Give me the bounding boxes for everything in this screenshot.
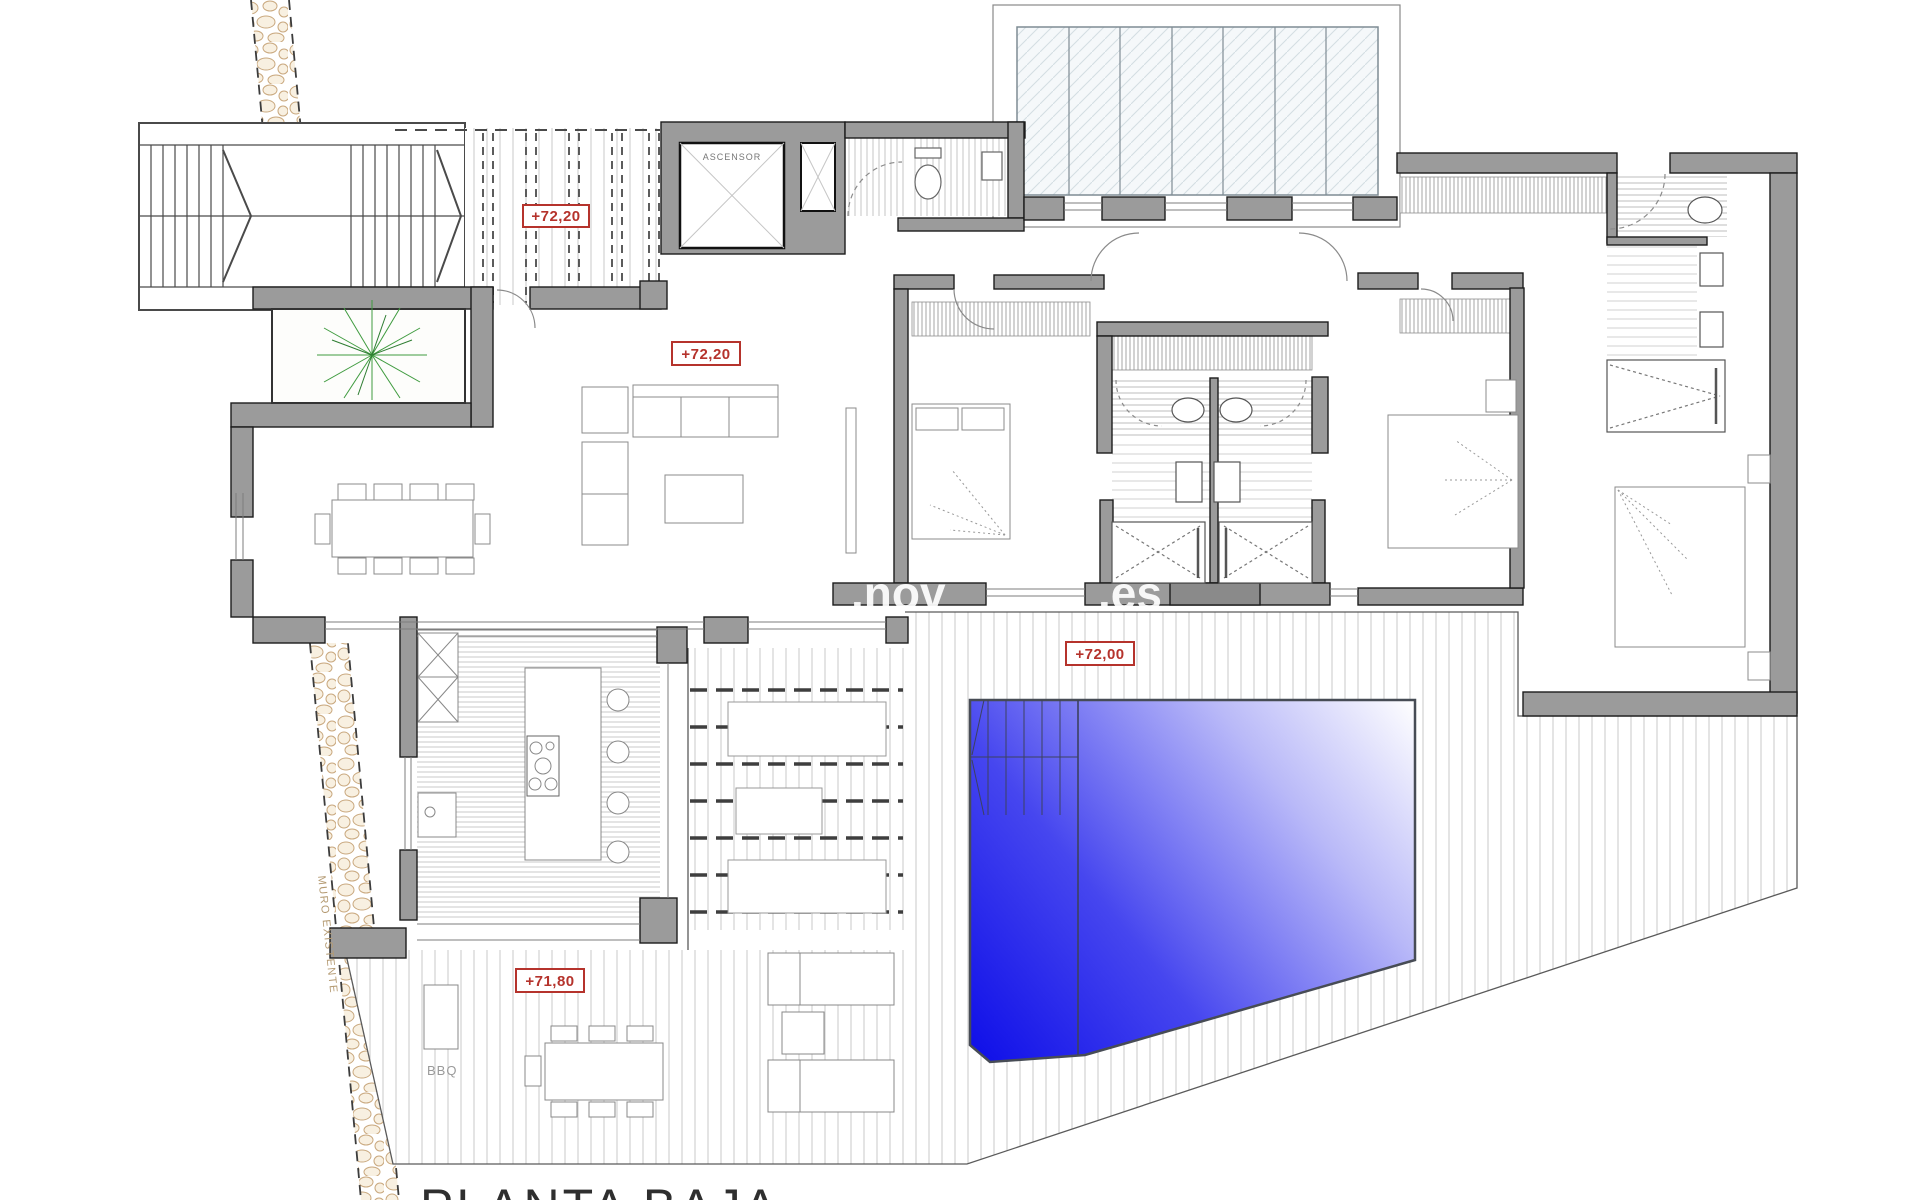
- watermark-left: .nov: [851, 567, 946, 619]
- skylight-glass-roof: [993, 5, 1400, 227]
- courtyard-planter: [272, 300, 465, 403]
- watermark-right: .es: [1098, 567, 1162, 619]
- floor-plan-page: ASCENSOR: [0, 0, 1920, 1200]
- floor-plan-canvas: ASCENSOR: [0, 0, 1920, 1200]
- svg-text:+72,20: +72,20: [681, 346, 730, 363]
- marker-living-room: +72,20: [672, 342, 740, 365]
- marker-lower-terrace: +71,80: [516, 969, 584, 992]
- page-title: PLANTA BAJA: [420, 1179, 780, 1200]
- svg-text:+72,00: +72,00: [1075, 646, 1124, 663]
- marker-pool-deck: +72,00: [1066, 642, 1134, 665]
- bbq-label: BBQ: [427, 1063, 457, 1078]
- marker-entry-porch: +72,20: [523, 205, 589, 227]
- svg-text:+71,80: +71,80: [525, 973, 574, 990]
- elevator-label: ASCENSOR: [703, 152, 762, 162]
- svg-text:+72,20: +72,20: [531, 208, 580, 225]
